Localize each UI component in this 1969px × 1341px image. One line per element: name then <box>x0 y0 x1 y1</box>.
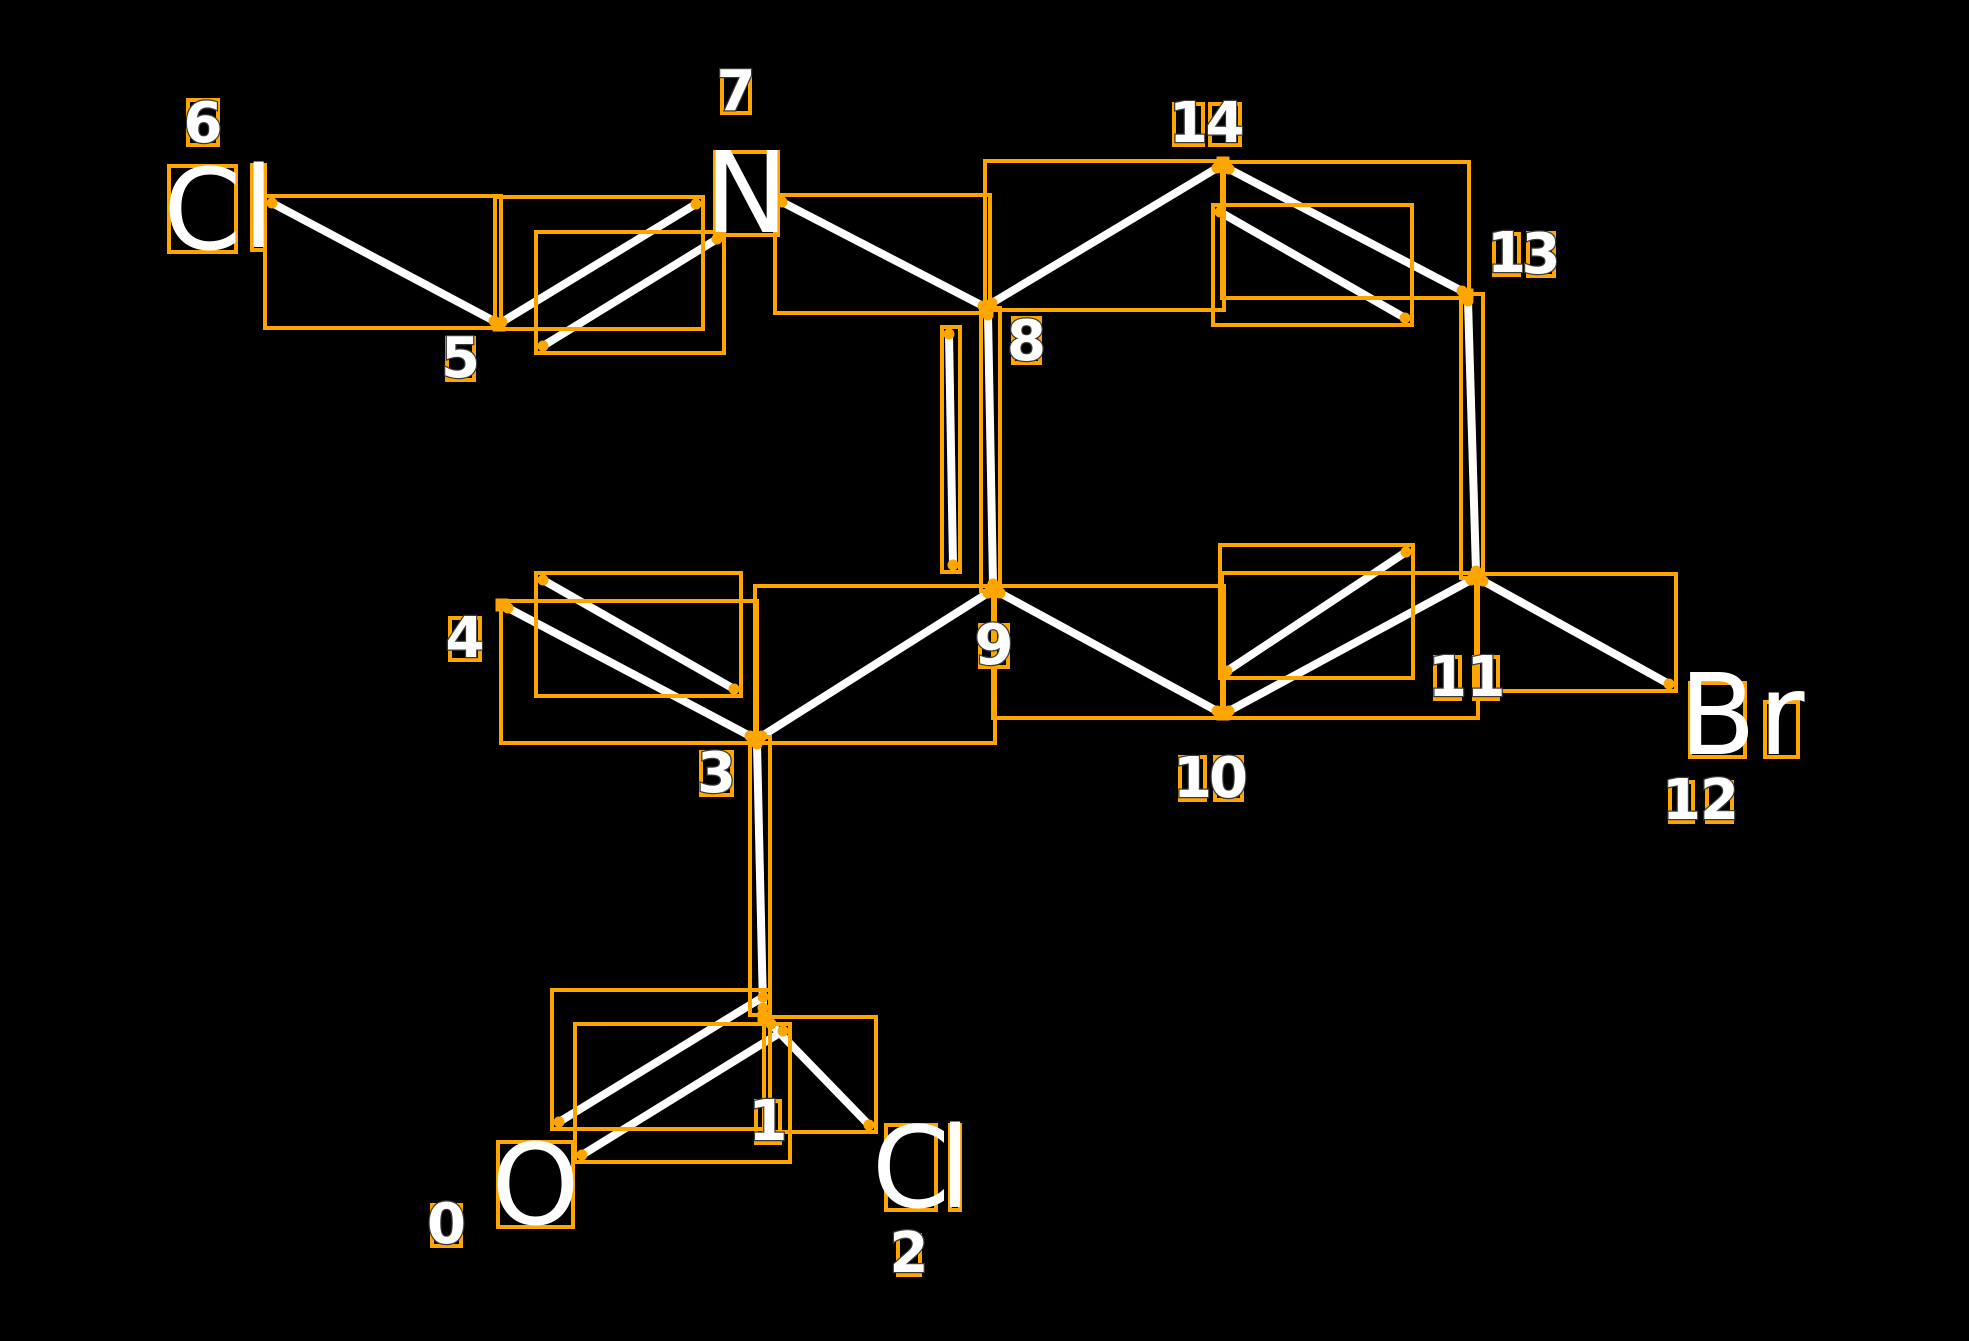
atom-11-index-digit: 1 <box>1467 645 1506 710</box>
atom-12-symbol-glyph: r <box>1758 651 1805 781</box>
atom-12-index-digit: 2 <box>1700 768 1739 833</box>
bond-endpoint-dot <box>538 341 549 352</box>
atom-13-index-digit: 3 <box>1522 222 1561 287</box>
bond-endpoint-dot <box>691 199 702 210</box>
atom-6-symbol-glyph: l <box>243 144 274 274</box>
atom-9-vertex-marker <box>988 584 1001 597</box>
atom-2-symbol-glyph: l <box>939 1104 970 1234</box>
bond-endpoint-dot <box>538 575 549 586</box>
molecule-annotation-canvas: OClClNBr01234567891011121314 <box>0 0 1969 1341</box>
bond-endpoint-dot <box>729 684 740 695</box>
atom-8-vertex-marker <box>981 303 994 316</box>
atom-5-index-digit: 5 <box>441 326 480 391</box>
atom-1-index-digit: 1 <box>749 1089 788 1154</box>
atom-11-index-digit: 1 <box>1428 645 1467 710</box>
atom-14-index-digit: 4 <box>1206 91 1245 156</box>
atom-7-index-digit: 7 <box>717 59 756 124</box>
atom-12-symbol-glyph: B <box>1679 651 1756 781</box>
atom-2-index-digit: 2 <box>890 1221 929 1286</box>
bond-endpoint-dot <box>758 992 769 1003</box>
atom-10-index-digit: 1 <box>1173 746 1212 811</box>
atom-3-index-digit: 3 <box>697 741 736 806</box>
atom-4-index-digit: 4 <box>446 606 485 671</box>
atom-1-vertex-marker <box>758 1012 771 1025</box>
molecule-annotation-view: OClClNBr01234567891011121314 <box>0 0 1969 1341</box>
atom-12-index-digit: 1 <box>1662 768 1701 833</box>
atom-11-vertex-marker <box>1471 571 1484 584</box>
atom-7-symbol-glyph: N <box>705 129 789 259</box>
atom-13-index-digit: 1 <box>1487 221 1526 286</box>
atom-9-index-digit: 9 <box>975 613 1014 678</box>
atom-0-index-digit: 0 <box>427 1192 466 1257</box>
bond-endpoint-dot <box>944 329 955 340</box>
atom-14-index-digit: 1 <box>1169 91 1208 156</box>
bond-endpoint-dot <box>1664 679 1675 690</box>
atom-10-vertex-marker <box>1217 708 1230 721</box>
atom-10-index-digit: 0 <box>1209 746 1248 811</box>
atom-5-vertex-marker <box>493 319 506 332</box>
bond-endpoint-dot <box>778 1026 789 1037</box>
atom-14-vertex-marker <box>1217 157 1230 170</box>
atom-4-vertex-marker <box>496 599 509 612</box>
bond-8-9-line-2 <box>949 334 953 565</box>
atom-6-symbol-glyph: C <box>163 146 241 276</box>
bond-endpoint-dot <box>1401 547 1412 558</box>
atom-0-symbol-glyph: O <box>491 1121 579 1251</box>
bond-endpoint-dot <box>1222 666 1233 677</box>
atom-2-symbol-glyph: C <box>872 1104 950 1234</box>
atom-6-index-digit: 6 <box>184 91 223 156</box>
atom-3-vertex-marker <box>750 732 763 745</box>
atom-8-index-digit: 8 <box>1007 309 1046 374</box>
bond-endpoint-dot <box>948 560 959 571</box>
bond-8-9-line-1 <box>988 315 993 584</box>
bond-endpoint-dot <box>1400 313 1411 324</box>
atom-13-vertex-marker <box>1461 289 1474 302</box>
bond-endpoint-dot <box>1215 207 1226 218</box>
